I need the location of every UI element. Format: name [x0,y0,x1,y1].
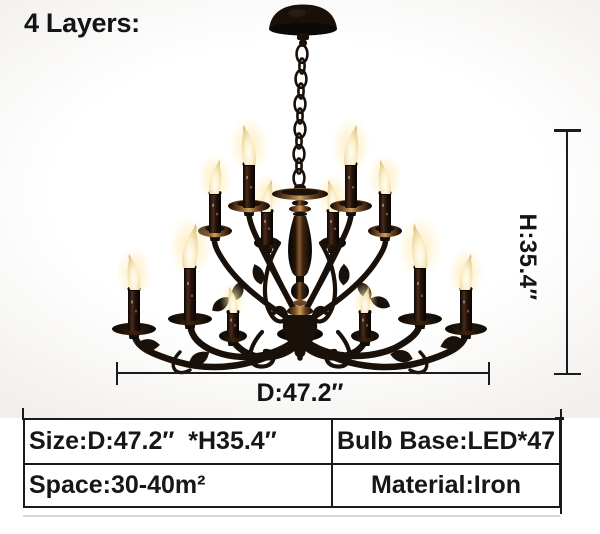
candle-sleeve [345,164,357,208]
chandelier-illustration [0,0,600,412]
candle-light [112,247,156,339]
ceiling-canopy [269,5,337,48]
spec-material-cell: Material:Iron [333,465,559,507]
candle-sleeve [414,267,426,321]
spec-space-cell: Space:30-40m² [25,465,333,507]
candle-sleeve [243,164,255,208]
hanging-chain [294,45,308,187]
spec-size-cell: Size:D:47.2″ *H35.4″ [25,420,333,465]
height-dimension-cap-bottom [554,373,581,376]
candle-sleeve [227,312,239,338]
height-dimension-cap-top [554,129,581,132]
table-scan-line-left [22,408,24,420]
table-scan-line-top [555,417,564,420]
candle-light [445,247,487,339]
candle-light [219,282,247,346]
candle-sleeve [209,193,221,233]
table-scan-line-right [560,409,562,514]
candle-sleeve [261,211,273,245]
candle-sleeve [184,267,196,321]
diameter-dimension-cap-left [116,362,119,385]
height-label: H:35.4″ [513,197,541,317]
height-dimension-line [566,130,568,374]
candle-light [351,282,379,346]
candle-light [368,153,402,241]
diameter-dimension-line [117,372,489,375]
center-column [272,184,328,361]
spec-table: Size:D:47.2″ *H35.4″ Bulb Base:LED*47 Sp… [23,418,561,508]
diameter-dimension-cap-right [488,362,491,385]
candle-sleeve [460,289,472,331]
candle-sleeve [327,211,339,245]
candle-sleeve [379,193,391,233]
candle-light [168,216,212,329]
spec-bulb-base-cell: Bulb Base:LED*47 [333,420,559,465]
candle-sleeve [128,289,140,331]
candle-sleeve [359,312,371,338]
candle-light [398,216,442,329]
table-scan-line-bottom [23,515,560,517]
product-spec-image: 4 Layers: [0,0,600,534]
diameter-label: D:47.2″ [210,379,390,408]
